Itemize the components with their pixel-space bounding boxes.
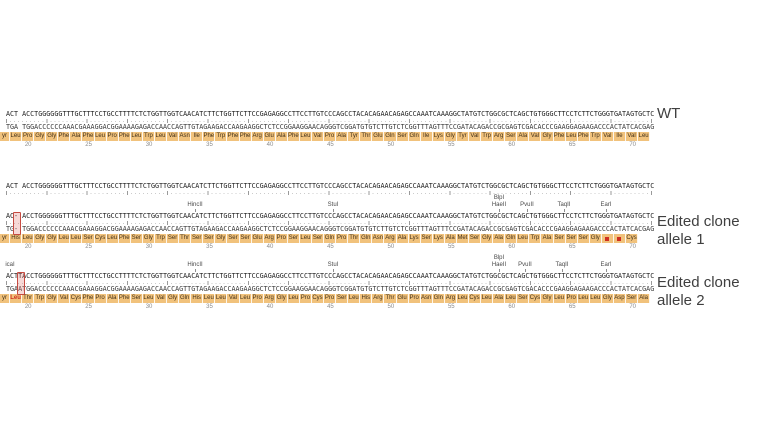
aa-cell: Asp [614,294,626,303]
ruler-number: 25 [85,304,92,310]
aa-cell: Pro [566,294,578,303]
ruler-number: 35 [206,304,213,310]
aa-cell: Ala [638,294,650,303]
aa-cell: Trp [34,294,46,303]
enzyme-site-tick [499,269,500,272]
aa-cell: yr [0,294,10,303]
aa-cell: Ala [107,294,119,303]
aa-cell: Ser [336,294,348,303]
enzyme-site-tick [195,269,196,272]
enzyme-label[interactable]: HincII [187,262,202,268]
bottom-strand[interactable]: TGAATGGACCCCCCAAACGAAAGGACGGAAAAGAGACCAA… [6,286,654,293]
aa-cell: Arg [264,294,276,303]
aa-cell: Cys [70,294,82,303]
aa-cell: Val [227,294,239,303]
aa-cell: Pro [300,294,312,303]
ruler-number: 40 [267,304,274,310]
aa-cell: His [360,294,372,303]
allele1-label-line1: Edited clone [657,213,740,231]
aa-cell: Ser [131,294,143,303]
aa-cell: Gln [179,294,191,303]
aa-cell: Cys [529,294,541,303]
aa-cell: Glu [397,294,409,303]
aa-cell: Val [155,294,167,303]
sequence-alignment-view: ACT ACCTGGGGGGTTTGCTTTCCTGCCTTTTCTCTGGTT… [0,0,768,432]
allele1-label: Edited clone allele 1 [657,213,740,249]
aa-cell: Leu [590,294,602,303]
aa-cell: Gly [541,294,553,303]
aa-cell: Gly [167,294,179,303]
aa-cell: Thr [22,294,34,303]
wt-label-text: WT [657,105,680,123]
aa-cell: Val [58,294,70,303]
enzyme-label[interactable]: StuI [328,262,339,268]
aa-cell: Leu [457,294,469,303]
aa-cell: Phe [82,294,94,303]
ruler-number: 55 [448,304,455,310]
ruler-number: 60 [508,304,515,310]
enzyme-site-tick [562,269,563,272]
enzyme-label[interactable]: PvuII [518,262,532,268]
ruler-number: 70 [629,304,636,310]
aa-cell: Pro [252,294,264,303]
aa-cell: Leu [143,294,155,303]
translation-row: yrLeuThrTrpGlyValCysPheProAlaPheSerLeuVa… [0,294,650,303]
aa-cell: Leu [578,294,590,303]
aa-cell: Gly [46,294,58,303]
aa-cell: Gly [276,294,288,303]
allele2-track: ACTTACCTGGGGGGTTTGCTTTCCTGCCTTTTCTCTGGTT… [0,0,768,432]
enzyme-label[interactable]: EarI [600,262,611,268]
aa-cell: Pro [95,294,107,303]
aa-cell: Pro [409,294,421,303]
top-strand[interactable]: ACTTACCTGGGGGGTTTGCTTTCCTGCCTTTTCTCTGGTT… [6,273,654,280]
aa-cell: Leu [203,294,215,303]
aa-cell: Ser [517,294,529,303]
aa-cell: Cys [312,294,324,303]
ruler-number: 45 [327,304,334,310]
allele2-label-line1: Edited clone [657,274,740,292]
aa-cell: Ala [493,294,505,303]
aa-cell: Leu [481,294,493,303]
ruler-number: 30 [146,304,153,310]
enzyme-label[interactable]: BlpI [494,255,504,261]
aa-cell: Pro [324,294,336,303]
enzyme-site-tick [606,269,607,272]
aa-cell: Leu [10,294,22,303]
aa-cell: His [191,294,203,303]
ruler-number: 50 [388,304,395,310]
enzyme-site-tick [525,269,526,272]
aa-cell: Leu [505,294,517,303]
allele1-label-line2: allele 1 [657,231,740,249]
wt-label: WT [657,105,680,123]
enzyme-label[interactable]: HaeII [492,262,506,268]
enzyme-label[interactable]: TaqII [555,262,568,268]
ruler-number: 20 [25,304,32,310]
aa-cell: Cys [469,294,481,303]
allele2-label-line2: allele 2 [657,292,740,310]
aa-cell: Leu [554,294,566,303]
aa-cell: Gly [602,294,614,303]
aa-cell: Leu [288,294,300,303]
aa-cell: Gln [433,294,445,303]
aa-cell: Leu [215,294,227,303]
aa-cell: Phe [119,294,131,303]
aa-cell: Thr [384,294,396,303]
aa-cell: Asn [421,294,433,303]
insertion-highlight [17,272,25,295]
ruler-number: 65 [569,304,576,310]
allele2-label: Edited clone allele 2 [657,274,740,310]
enzyme-site-tick [10,269,11,272]
aa-cell: Leu [240,294,252,303]
aa-cell: Arg [445,294,457,303]
aa-cell: Arg [372,294,384,303]
enzyme-site-tick [333,269,334,272]
aa-cell: Leu [348,294,360,303]
enzyme-label[interactable]: icaI [5,262,14,268]
aa-cell: Ser [626,294,638,303]
